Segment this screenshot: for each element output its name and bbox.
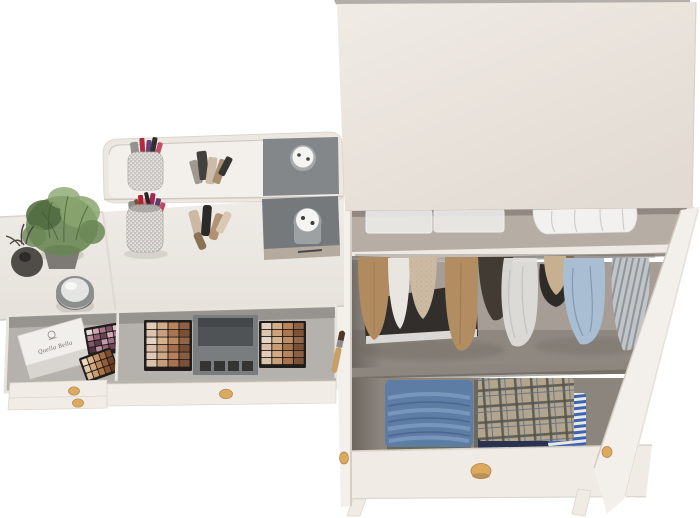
furniture-render: Quella Bella [0, 0, 700, 518]
storage-bins [366, 209, 504, 233]
center-drawer-knob [220, 389, 233, 399]
folded-plaid [478, 378, 574, 441]
vase-mouth [19, 252, 31, 262]
fabric-basket [533, 207, 637, 234]
kit-slot [228, 361, 239, 371]
left-drawer-front-lower [8, 396, 107, 410]
gray-case [262, 196, 340, 260]
candle-highlight [65, 282, 77, 290]
jar-top [296, 209, 319, 232]
stack-divider-shadow [474, 380, 478, 458]
jar-dot [297, 153, 301, 157]
door-right-knob [602, 447, 612, 458]
kit-slot [200, 361, 211, 371]
diffuser-vase [11, 247, 43, 277]
reflect-jar-top [293, 147, 314, 168]
cup-opening [129, 204, 161, 213]
kit-mirror-flap [198, 318, 253, 327]
jar-dot [306, 157, 310, 161]
jar-dot [301, 216, 305, 220]
wardrobe [334, 0, 700, 516]
left-drawer-front-upper [9, 380, 107, 398]
candle [56, 276, 94, 314]
vanity-mirror [103, 132, 344, 203]
wardrobe-top-panel [337, 2, 696, 212]
kit-slot [242, 361, 253, 371]
kit-slot [214, 361, 225, 371]
door-left-knob [340, 452, 349, 464]
makeup-kit [144, 315, 306, 375]
center-drawer-open [116, 306, 346, 390]
storage-bin [366, 210, 432, 233]
knob-shadow [472, 473, 490, 479]
candle-top [61, 278, 89, 302]
storage-bin [434, 209, 504, 232]
left-drawer-knob-lower [73, 399, 84, 407]
dressing-table: Quella Bella [0, 132, 346, 410]
jar-dot [311, 221, 315, 225]
vanity-drawer-fronts [8, 378, 336, 410]
left-drawer-knob-upper [69, 387, 80, 395]
